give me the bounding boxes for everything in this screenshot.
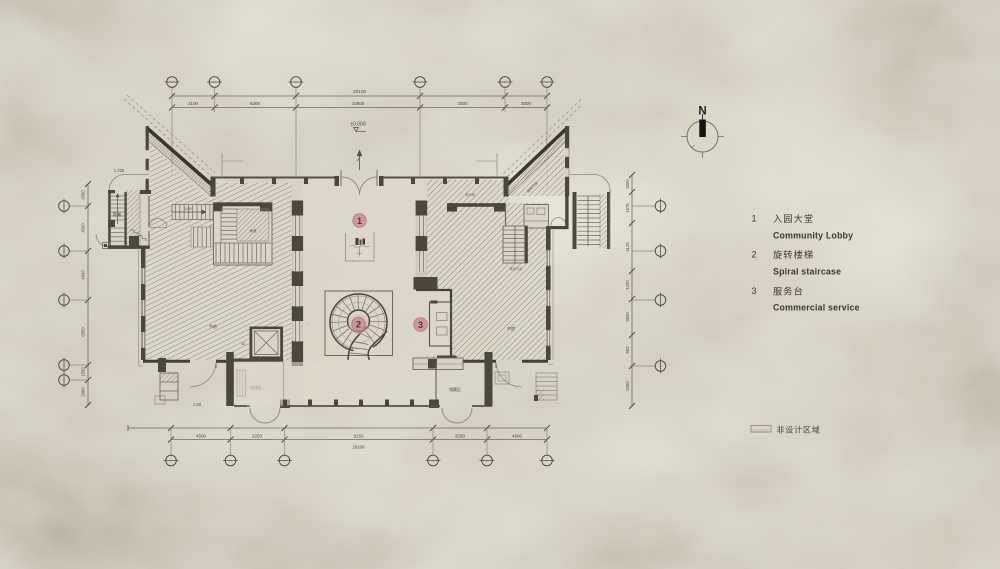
svg-text:··: ·· [283,459,286,464]
svg-text:Community Lobby: Community Lobby [773,231,853,241]
svg-text:3: 3 [751,286,756,296]
svg-text:书房: 书房 [507,325,515,332]
svg-text:··: ·· [504,80,507,85]
svg-text:··: ·· [63,204,66,209]
svg-text:29100: 29100 [353,89,367,95]
svg-text:2000: 2000 [81,190,86,200]
svg-text:2400: 2400 [81,387,86,397]
svg-text:Spiral staircase: Spiral staircase [773,267,841,277]
svg-text:··: ·· [295,80,298,85]
svg-text:旋转楼梯: 旋转楼梯 [773,249,814,260]
svg-text:Commercial service: Commercial service [773,303,860,313]
svg-text:··: ·· [486,459,489,464]
svg-text:1 225: 1 225 [114,168,125,173]
svg-text:1575: 1575 [625,203,630,213]
svg-text:4500: 4500 [512,434,523,439]
svg-text:3: 3 [418,320,423,330]
svg-text:··: ·· [229,459,232,464]
svg-text:入园大堂: 入园大堂 [773,213,814,224]
svg-text:··: ·· [432,459,435,464]
svg-text:N: N [698,106,706,118]
svg-text:4900: 4900 [81,270,86,280]
svg-text:3000: 3000 [521,101,532,106]
svg-text:··: ·· [659,364,662,369]
svg-text:1: 1 [357,216,362,226]
svg-text:2: 2 [356,319,361,329]
svg-text:6500: 6500 [81,327,86,337]
svg-text:4500: 4500 [196,434,207,439]
svg-text:··: ·· [63,298,66,303]
svg-text:··: ·· [63,249,66,254]
svg-text:非设计区域: 非设计区域 [777,425,821,435]
svg-text:1: 1 [751,214,756,224]
svg-text:5400: 5400 [625,381,630,391]
svg-text:休息平台: 休息平台 [510,266,523,271]
svg-text:29100: 29100 [353,445,365,450]
svg-text:··: ·· [659,249,662,254]
svg-text:··: ·· [213,80,216,85]
svg-text:2100: 2100 [188,101,199,106]
svg-text:茶水间: 茶水间 [465,192,475,197]
svg-text:2000: 2000 [625,179,630,189]
svg-text:··: ·· [659,204,662,209]
svg-text:··: ·· [419,80,422,85]
svg-text:··: ·· [63,378,66,383]
svg-text:··: ·· [170,459,173,464]
svg-text:3600: 3600 [625,312,630,322]
svg-text:··: ·· [171,80,174,85]
svg-text:3.09: 3.09 [185,207,192,211]
svg-text:··: ·· [659,298,662,303]
svg-text:储藏区: 储藏区 [449,386,461,392]
svg-text:2: 2 [751,250,756,260]
svg-text:10500: 10500 [352,101,365,106]
svg-text:休息: 休息 [249,228,257,233]
svg-text:1#: 1# [241,342,245,346]
svg-text:6300: 6300 [250,101,261,106]
svg-text:1:50: 1:50 [193,402,202,407]
svg-text:4500: 4500 [81,223,86,233]
svg-text:1420: 1420 [625,280,630,290]
svg-text:3300: 3300 [457,101,468,106]
svg-text:··: ·· [63,363,66,368]
svg-text:1500: 1500 [81,367,86,377]
svg-text:3250: 3250 [252,434,263,439]
svg-text:962: 962 [625,346,630,354]
svg-text:±0.000: ±0.000 [350,122,365,128]
svg-text:4120: 4120 [625,242,630,252]
svg-text:··: ·· [546,80,549,85]
svg-text:服务台: 服务台 [773,286,804,297]
svg-text:3250: 3250 [455,434,466,439]
svg-text:书房: 书房 [209,323,217,330]
svg-text:··: ·· [546,459,549,464]
svg-text:9150: 9150 [353,434,364,439]
